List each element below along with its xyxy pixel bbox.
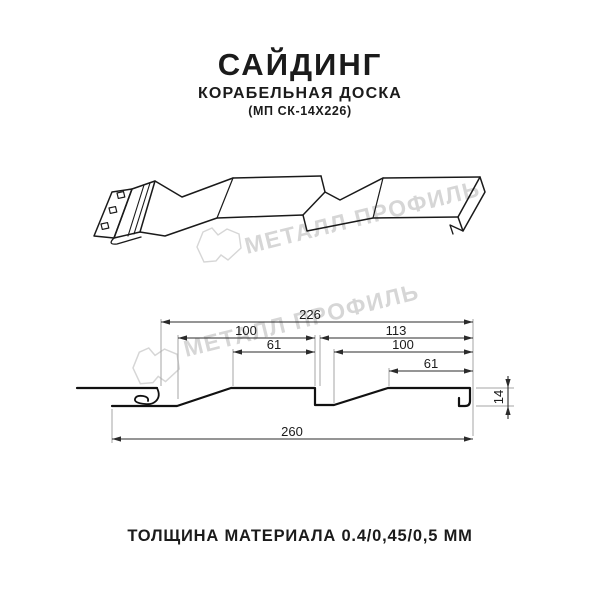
dim-panel1: 100 <box>235 323 257 338</box>
drawing-svg: МЕТАЛЛ ПРОФИЛЬ МЕТАЛЛ ПРОФИЛЬ <box>0 0 600 600</box>
dim-flat2-small: 61 <box>424 356 438 371</box>
slope1-flat1-fold <box>217 178 233 218</box>
slope1-edges <box>155 178 233 197</box>
lock-knot <box>135 388 159 404</box>
technical-drawing-page: САЙДИНГ КОРАБЕЛЬНАЯ ДОСКА (МП СК-14Х226)… <box>0 0 600 600</box>
brand-logo-icon <box>197 228 241 262</box>
flat1-top-edge <box>233 176 321 178</box>
profile-outline <box>112 388 470 406</box>
thickness-note: ТОЛЩИНА МАТЕРИАЛА 0.4/0,45/0,5 ММ <box>0 527 600 546</box>
panel-step <box>303 176 325 215</box>
cross-section-profile <box>77 388 470 406</box>
dim-height: 14 <box>491 390 506 404</box>
nail-strip <box>94 189 132 238</box>
dim-flat2: 100 <box>392 337 414 352</box>
flat2-top-edge <box>383 177 480 178</box>
watermark-upper: МЕТАЛЛ ПРОФИЛЬ <box>197 175 483 262</box>
dim-flat1: 61 <box>267 337 281 352</box>
brand-logo-icon <box>133 348 179 384</box>
lock-hem <box>114 181 155 238</box>
dimension-lines <box>112 322 508 439</box>
dim-overall: 260 <box>281 424 303 439</box>
dim-panel2: 113 <box>386 323 407 338</box>
slope2-top-edge <box>325 178 383 200</box>
dim-coverage: 226 <box>299 307 321 322</box>
watermark-lower: МЕТАЛЛ ПРОФИЛЬ <box>133 278 422 384</box>
